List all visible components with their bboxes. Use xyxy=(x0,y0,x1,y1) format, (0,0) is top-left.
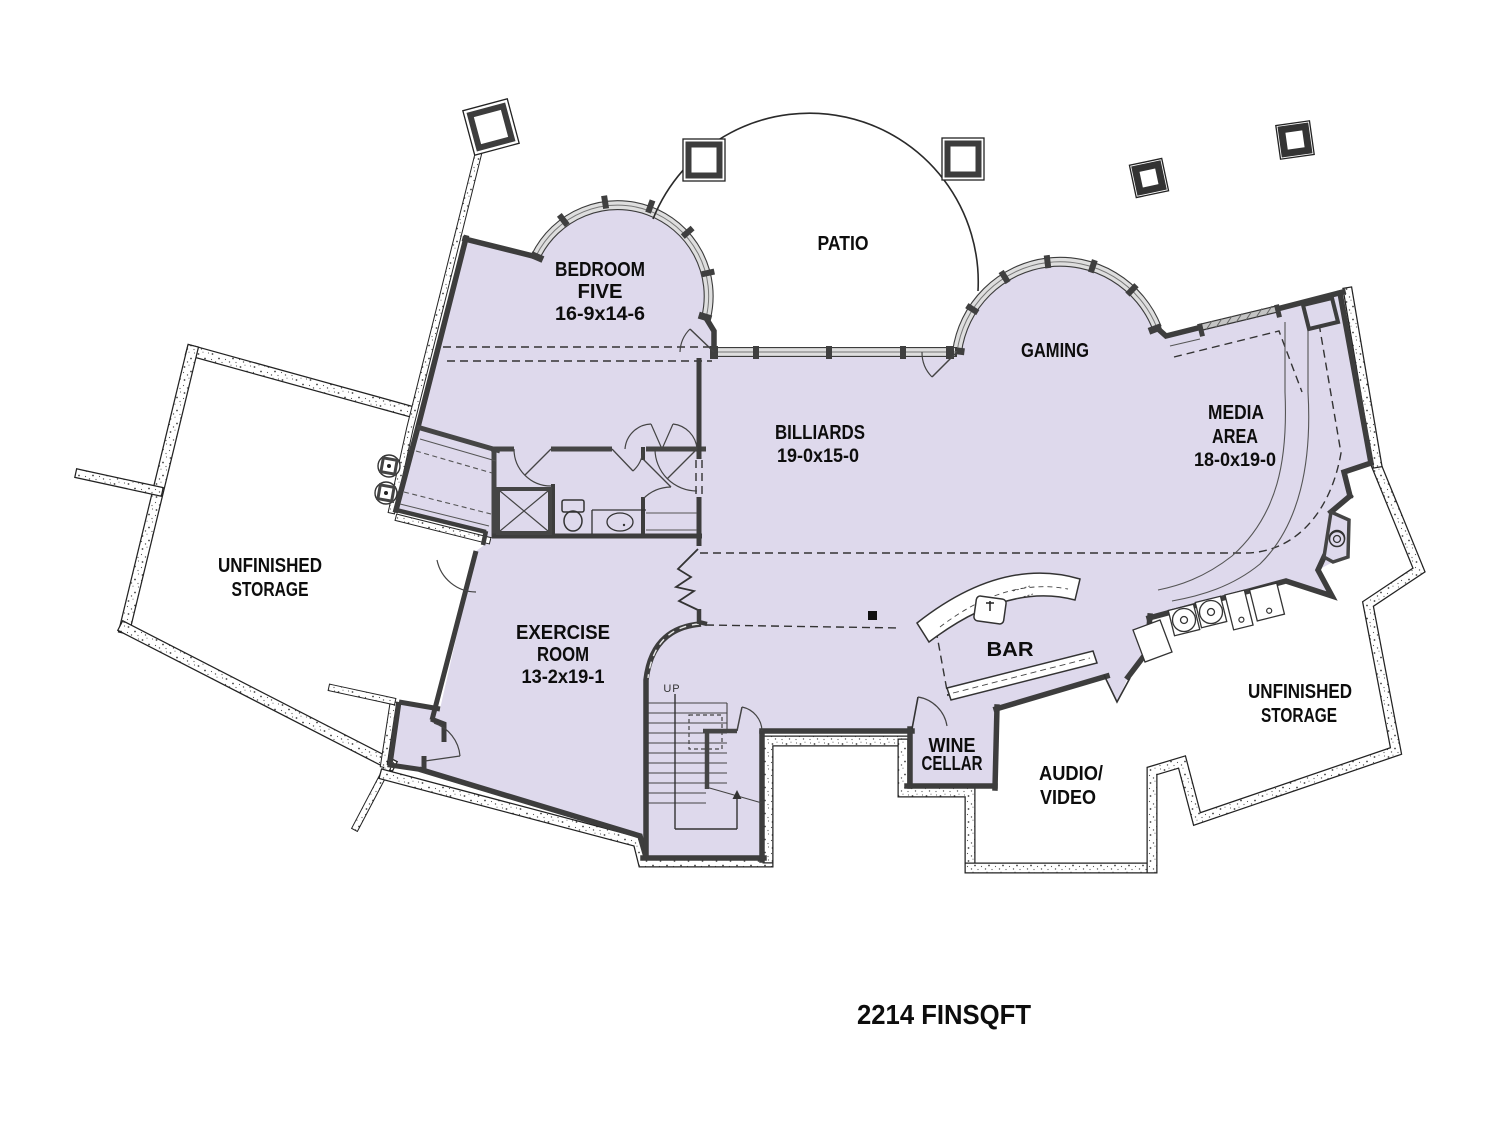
svg-text:BILLIARDS: BILLIARDS xyxy=(775,422,865,444)
svg-text:PATIO: PATIO xyxy=(818,233,869,255)
svg-text:BEDROOM: BEDROOM xyxy=(555,259,645,281)
svg-text:UNFINISHED: UNFINISHED xyxy=(1248,681,1352,703)
svg-text:BAR: BAR xyxy=(987,639,1035,661)
svg-text:FIVE: FIVE xyxy=(578,281,623,303)
svg-text:STORAGE: STORAGE xyxy=(1261,705,1337,727)
svg-text:STORAGE: STORAGE xyxy=(232,579,309,601)
svg-text:MEDIA: MEDIA xyxy=(1208,402,1264,424)
svg-text:VIDEO: VIDEO xyxy=(1040,787,1096,809)
svg-text:16-9x14-6: 16-9x14-6 xyxy=(555,304,645,325)
svg-text:19-0x15-0: 19-0x15-0 xyxy=(777,446,859,467)
svg-text:2214 FINSQFT: 2214 FINSQFT xyxy=(857,999,1031,1030)
svg-text:13-2x19-1: 13-2x19-1 xyxy=(522,667,605,688)
svg-text:UNFINISHED: UNFINISHED xyxy=(218,555,322,577)
svg-text:AUDIO/: AUDIO/ xyxy=(1039,763,1103,785)
svg-text:18-0x19-0: 18-0x19-0 xyxy=(1194,450,1276,471)
svg-text:UP: UP xyxy=(663,683,680,695)
svg-text:CELLAR: CELLAR xyxy=(922,753,983,775)
svg-text:AREA: AREA xyxy=(1212,426,1258,448)
svg-text:EXERCISE: EXERCISE xyxy=(516,622,610,644)
svg-text:GAMING: GAMING xyxy=(1021,340,1089,362)
svg-text:ROOM: ROOM xyxy=(537,644,589,666)
